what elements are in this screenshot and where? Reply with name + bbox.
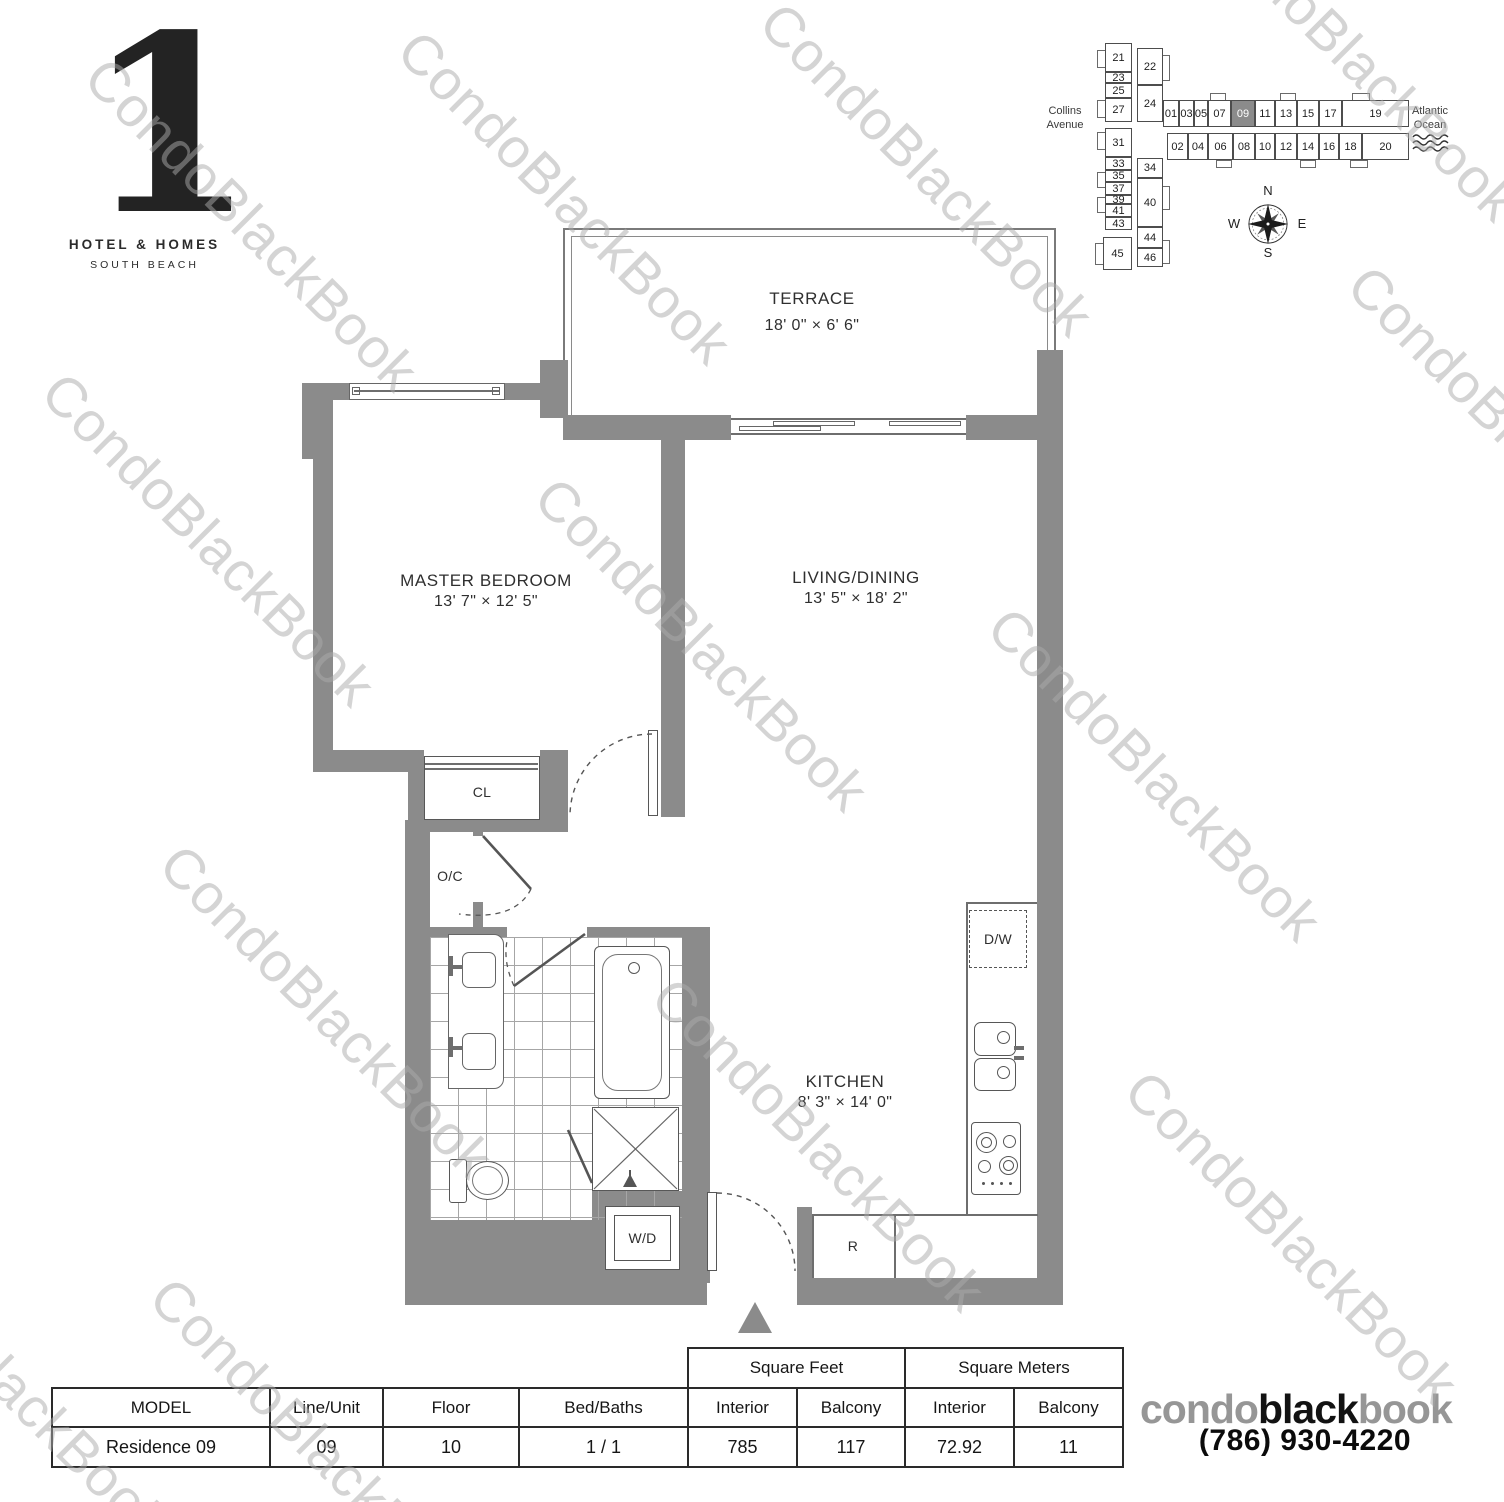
room-label-master-bedroom: MASTER BEDROOM: [366, 571, 606, 591]
keyplan-ocean-label-line2: Ocean: [1404, 119, 1456, 131]
keyplan-unit: 22: [1137, 48, 1163, 85]
keyplan-unit: 27: [1105, 98, 1132, 122]
group-header-square-meters: Square Meters: [905, 1348, 1123, 1388]
compass-label-south: S: [1260, 245, 1276, 260]
column-header-sqm-balcony: Balcony: [1014, 1388, 1123, 1427]
keyplan-balcony-tick: [1162, 186, 1170, 210]
spec-table: Square Feet Square Meters MODEL Line/Uni…: [51, 1347, 1124, 1468]
terrace-sliding-door: [731, 415, 966, 437]
floorplan-page: 1 HOTEL & HOMES SOUTH BEACH Collins Aven…: [0, 0, 1504, 1502]
hotel-logo-line1: HOTEL & HOMES: [62, 237, 227, 252]
cell-sqm-interior: 72.92: [905, 1427, 1014, 1467]
group-header-square-feet: Square Feet: [688, 1348, 905, 1388]
wall-segment: [563, 415, 731, 440]
room-label-living-dining: LIVING/DINING: [736, 568, 976, 588]
faucet-icon: [449, 956, 453, 976]
cell-sqft-interior: 785: [688, 1427, 797, 1467]
wall-segment: [587, 927, 683, 937]
watermark-text: CondoBlackBook: [975, 595, 1335, 955]
keyplan-unit: 11: [1255, 100, 1275, 127]
wall-segment: [661, 425, 685, 817]
keyplan-unit: 41: [1105, 204, 1132, 217]
phone-number: (786) 930-4220: [1146, 1424, 1464, 1458]
wave-line: [1413, 147, 1448, 151]
room-label-kitchen: KITCHEN: [770, 1072, 920, 1092]
cooktop-knob: [1009, 1182, 1012, 1185]
kitchen-sink-drain: [997, 1066, 1010, 1079]
column-header-model: MODEL: [52, 1388, 270, 1427]
wall-segment: [540, 360, 568, 418]
room-dims-terrace: 18' 0" × 6' 6": [712, 317, 912, 335]
bathroom-sink: [462, 1033, 496, 1070]
keyplan-balcony-tick: [1350, 160, 1368, 168]
closet-door-track: [425, 768, 538, 770]
sliding-door-track: [731, 418, 966, 420]
keyplan-unit: 06: [1208, 133, 1233, 160]
kitchen-faucet-icon: [1014, 1056, 1024, 1060]
compass-label-east: E: [1294, 216, 1310, 231]
keyplan-unit: 01: [1163, 100, 1179, 127]
keyplan-unit: 25: [1105, 83, 1132, 98]
sliding-door-panel: [739, 426, 821, 431]
kitchen-counter-line: [894, 1214, 896, 1278]
wave-line: [1413, 135, 1448, 139]
wall-segment: [797, 1278, 1063, 1305]
room-dims-kitchen: 8' 3" × 14' 0": [770, 1094, 920, 1112]
wall-segment: [473, 820, 483, 836]
keyplan-balcony-tick: [1300, 160, 1316, 168]
keyplan-unit: 03: [1179, 100, 1194, 127]
keyplan-unit-highlighted: 09: [1231, 100, 1255, 127]
keyplan-unit: 33: [1105, 157, 1132, 170]
window-end-cap: [352, 387, 360, 395]
washer-dryer-inner: W/D: [614, 1215, 671, 1261]
burner: [1003, 1160, 1014, 1171]
dishwasher-label: D/W: [969, 931, 1027, 947]
column-header-bed-baths: Bed/Baths: [519, 1388, 688, 1427]
keyplan-ocean-label-line1: Atlantic: [1404, 105, 1456, 117]
ocean-waves-icon: [1411, 133, 1451, 155]
keyplan-unit: 35: [1105, 170, 1132, 182]
cell-model: Residence 09: [52, 1427, 270, 1467]
closet-label: CL: [424, 784, 540, 800]
column-header-floor: Floor: [383, 1388, 519, 1427]
sliding-door-panel: [889, 421, 961, 426]
keyplan-unit: 13: [1275, 100, 1297, 127]
keyplan-unit: 43: [1105, 217, 1132, 230]
keyplan-unit: 14: [1297, 133, 1319, 160]
kitchen-faucet-icon: [1014, 1046, 1024, 1050]
keyplan-street-label-line2: Avenue: [1036, 119, 1094, 131]
keyplan-unit: 02: [1167, 133, 1188, 160]
keyplan-unit: 44: [1137, 227, 1163, 248]
refrigerator-label: R: [812, 1238, 894, 1254]
compass-hub: [1266, 222, 1270, 226]
keyplan-unit: 16: [1319, 133, 1339, 160]
kitchen-counter-line: [812, 1214, 1038, 1216]
cell-bed-baths: 1 / 1: [519, 1427, 688, 1467]
keyplan-unit: 46: [1137, 248, 1163, 267]
cooktop-knob: [991, 1182, 994, 1185]
keyplan-unit: 10: [1255, 133, 1275, 160]
keyplan-unit: 21: [1105, 43, 1132, 72]
hotel-logo-line2: SOUTH BEACH: [62, 259, 227, 271]
keyplan-unit: 07: [1208, 100, 1231, 127]
compass-rose-icon: [1247, 203, 1289, 245]
wave-line: [1413, 141, 1448, 145]
wall-segment: [473, 902, 483, 927]
keyplan-balcony-tick: [1162, 55, 1170, 81]
entry-door-leaf: [707, 1192, 717, 1271]
keyplan-unit: 40: [1137, 178, 1163, 227]
room-dims-living-dining: 13' 5" × 18' 2": [736, 590, 976, 608]
keyplan-unit: 24: [1137, 85, 1163, 122]
cooktop-knob: [982, 1182, 985, 1185]
bedroom-door-leaf: [648, 730, 658, 816]
entry-arrow: [738, 1302, 772, 1333]
kitchen-counter-line: [966, 902, 1037, 904]
kitchen-sink-basin: [974, 1058, 1016, 1091]
room-dims-master-bedroom: 13' 7" × 12' 5": [366, 593, 606, 611]
cooktop-knob: [1000, 1182, 1003, 1185]
window-mullion: [354, 390, 499, 392]
compass-label-north: N: [1260, 183, 1276, 198]
window-end-cap: [492, 387, 500, 395]
owners-closet-label: O/C: [424, 868, 476, 884]
keyplan-unit: 19: [1342, 100, 1409, 127]
keyplan-unit: 31: [1105, 128, 1132, 157]
wall-segment: [797, 1207, 812, 1278]
bathroom-sink: [462, 952, 496, 988]
washer-dryer-label: W/D: [628, 1230, 656, 1246]
bathtub-inner: [602, 954, 662, 1091]
wall-segment: [1037, 350, 1063, 1305]
column-header-line-unit: Line/Unit: [270, 1388, 383, 1427]
wall-segment: [302, 383, 333, 459]
compass-label-west: W: [1226, 216, 1242, 231]
room-label-terrace: TERRACE: [712, 289, 912, 309]
burner: [981, 1137, 992, 1148]
keyplan-balcony-tick: [1162, 240, 1170, 264]
wall-segment: [408, 820, 568, 832]
keyplan-unit: 05: [1194, 100, 1208, 127]
watermark-text: CondoBlackBook: [1112, 1058, 1472, 1418]
door-leaf: [483, 836, 531, 889]
column-header-sqft-balcony: Balcony: [797, 1388, 905, 1427]
keyplan-unit: 34: [1137, 158, 1163, 178]
burner: [978, 1160, 991, 1173]
shower-stall: [592, 1107, 679, 1191]
kitchen-counter-line: [966, 902, 968, 1216]
kitchen-sink-drain: [997, 1031, 1010, 1044]
bedroom-window: [349, 383, 505, 400]
entry-door-swing-arc: [717, 1193, 795, 1271]
closet-door-track: [425, 763, 538, 765]
hotel-logo-numeral: 1: [85, 18, 215, 234]
keyplan-unit: 08: [1233, 133, 1255, 160]
toilet-bowl-inner: [472, 1166, 503, 1195]
burner: [1003, 1135, 1016, 1148]
cell-line-unit: 09: [270, 1427, 383, 1467]
watermark-text: CondoBlackBook: [522, 465, 882, 825]
keyplan-unit: 12: [1275, 133, 1297, 160]
toilet-tank: [449, 1159, 467, 1203]
table-spacer: [52, 1348, 688, 1388]
watermark-text: CondoBlackBook: [1335, 253, 1504, 613]
cell-sqm-balcony: 11: [1014, 1427, 1123, 1467]
keyplan-unit: 15: [1297, 100, 1319, 127]
column-header-sqft-interior: Interior: [688, 1388, 797, 1427]
wall-segment: [966, 415, 1037, 440]
sliding-door-track: [731, 433, 966, 435]
column-header-sqm-interior: Interior: [905, 1388, 1014, 1427]
keyplan-unit: 17: [1319, 100, 1342, 127]
keyplan-street-label-line1: Collins: [1036, 105, 1094, 117]
cooktop: [971, 1122, 1021, 1195]
door-swing-arc: [570, 734, 652, 816]
cell-floor: 10: [383, 1427, 519, 1467]
faucet-icon: [449, 1037, 453, 1057]
cell-sqft-balcony: 117: [797, 1427, 905, 1467]
keyplan-unit: 39: [1105, 195, 1132, 204]
door-swing-arc: [459, 889, 531, 915]
keyplan-balcony-tick: [1216, 160, 1232, 168]
keyplan-unit: 45: [1103, 237, 1132, 270]
keyplan-unit: 20: [1362, 133, 1409, 160]
wall-segment: [405, 930, 430, 1222]
watermark-text: CondoBlackBook: [29, 360, 389, 720]
keyplan-unit: 04: [1188, 133, 1208, 160]
bathtub-drain: [628, 962, 640, 974]
wall-segment: [313, 455, 333, 755]
keyplan-unit: 23: [1105, 72, 1132, 83]
keyplan-unit: 18: [1339, 133, 1362, 160]
